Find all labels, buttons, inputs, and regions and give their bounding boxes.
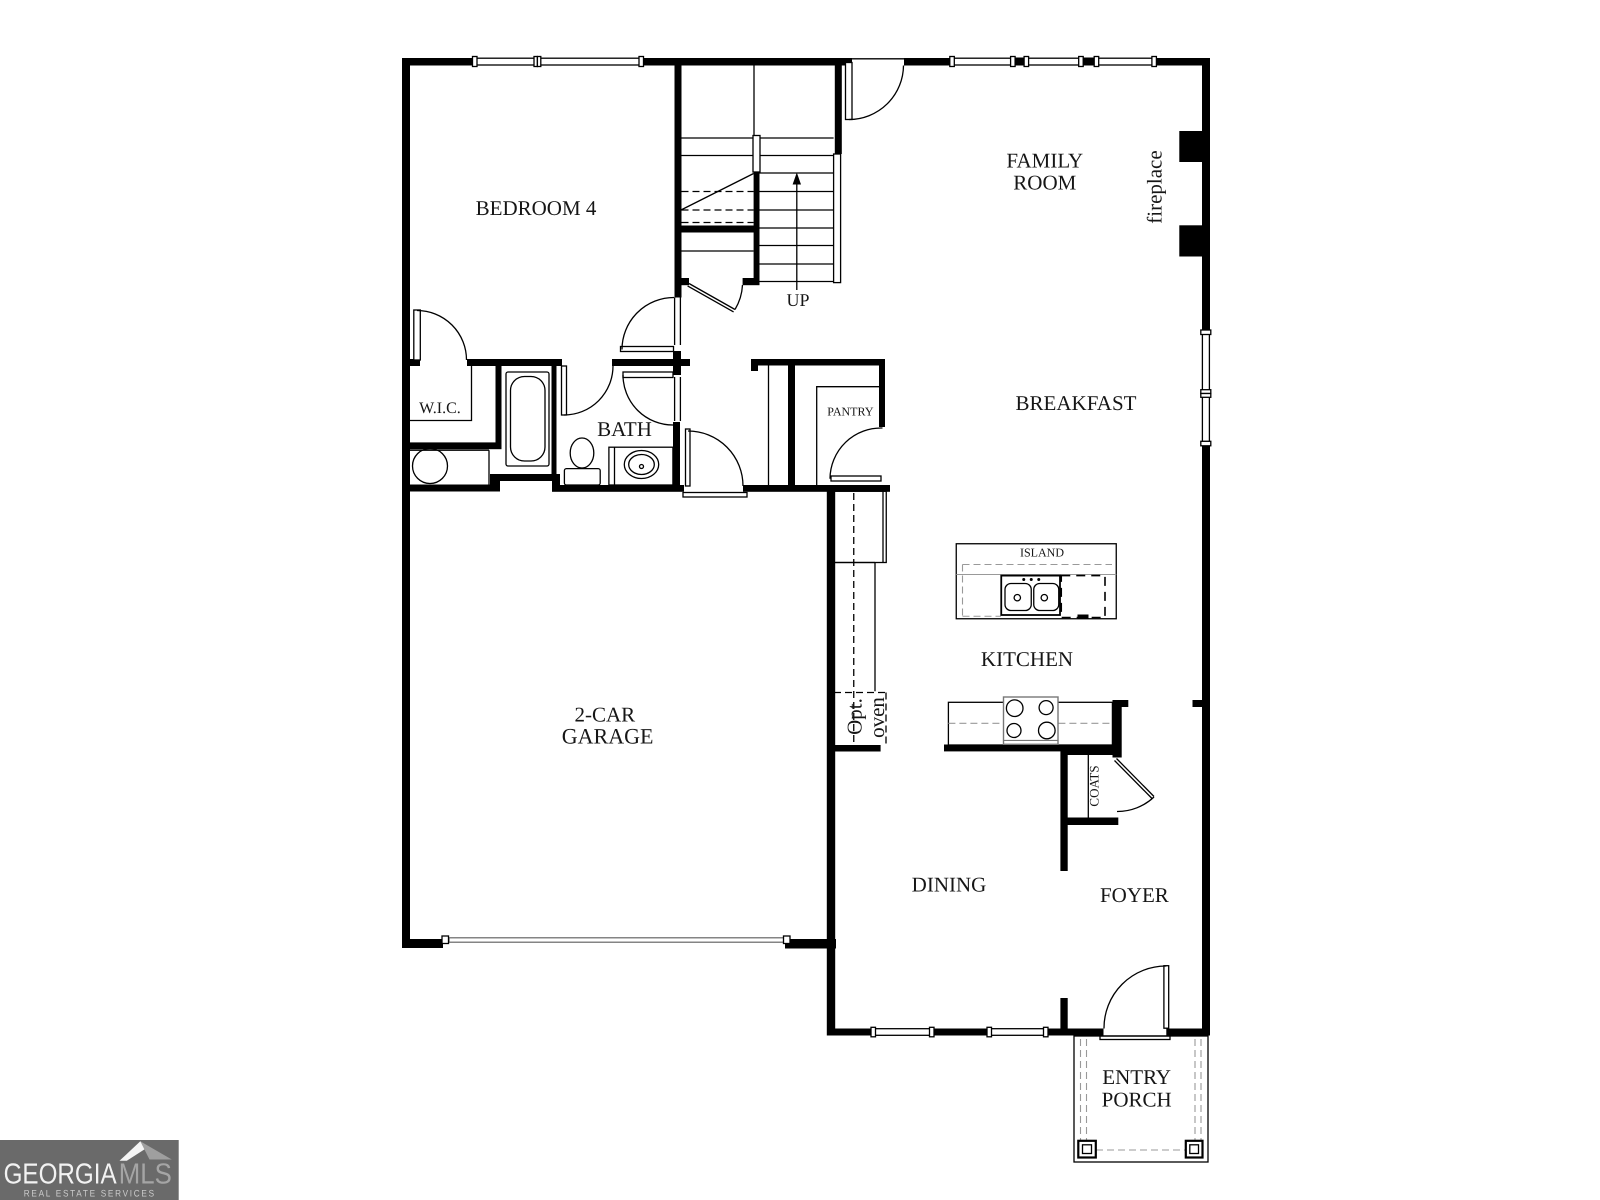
svg-text:ISLAND: ISLAND xyxy=(1020,546,1064,560)
svg-text:BATH: BATH xyxy=(597,417,652,441)
svg-text:Opt.: Opt. xyxy=(843,698,867,735)
svg-text:PORCH: PORCH xyxy=(1102,1088,1172,1112)
svg-text:UP: UP xyxy=(786,290,809,310)
svg-text:fireplace: fireplace xyxy=(1143,150,1167,223)
svg-text:FOYER: FOYER xyxy=(1100,883,1169,907)
svg-text:W.I.C.: W.I.C. xyxy=(419,400,461,417)
svg-text:ENTRY: ENTRY xyxy=(1102,1065,1171,1089)
svg-text:PANTRY: PANTRY xyxy=(827,405,874,419)
svg-text:FAMILY: FAMILY xyxy=(1006,149,1083,173)
svg-text:REAL ESTATE SERVICES: REAL ESTATE SERVICES xyxy=(24,1189,156,1200)
svg-text:oven: oven xyxy=(865,697,889,738)
svg-text:COATS: COATS xyxy=(1086,765,1101,806)
svg-text:BREAKFAST: BREAKFAST xyxy=(1016,391,1137,415)
svg-text:BEDROOM 4: BEDROOM 4 xyxy=(476,196,597,220)
svg-text:DINING: DINING xyxy=(912,873,987,897)
svg-text:MLS: MLS xyxy=(119,1159,172,1191)
svg-text:GARAGE: GARAGE xyxy=(562,724,654,749)
svg-text:KITCHEN: KITCHEN xyxy=(981,647,1073,671)
svg-text:ROOM: ROOM xyxy=(1013,171,1076,195)
svg-text:GEORGIA: GEORGIA xyxy=(4,1159,118,1191)
